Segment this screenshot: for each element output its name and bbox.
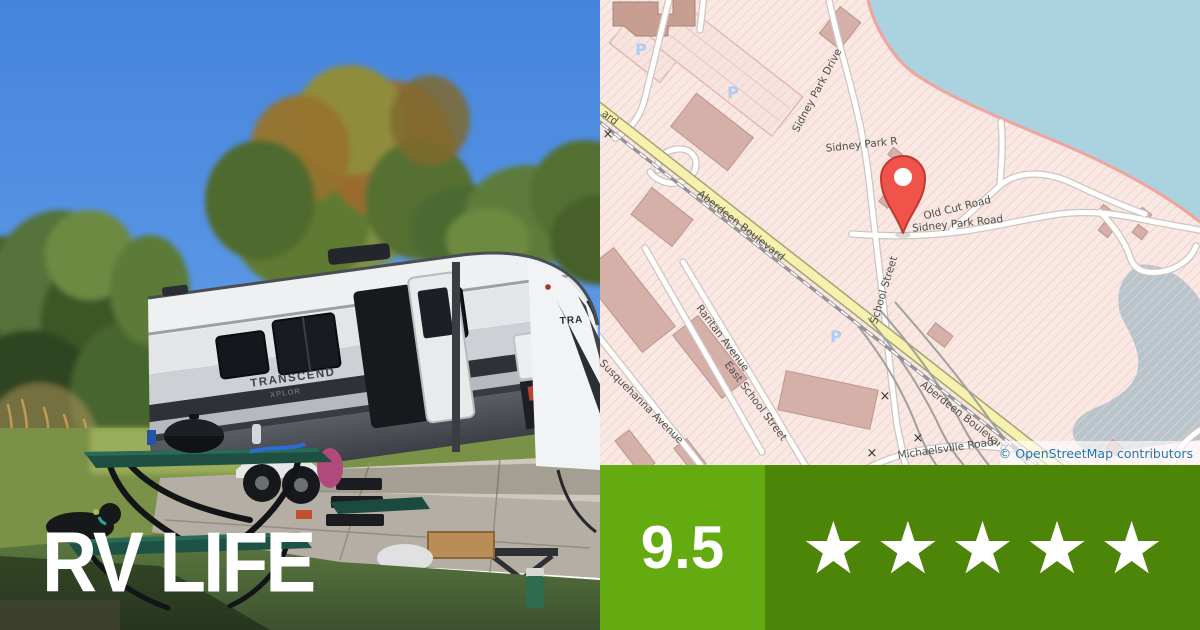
svg-text:P: P [635, 40, 647, 59]
svg-text:×: × [603, 127, 614, 142]
rating-score: 9.5 [641, 513, 724, 582]
water-bottle [252, 424, 261, 444]
attribution-link: © OpenStreetMap contributors [999, 446, 1193, 461]
rating-stars-box: ★★★★★ [765, 465, 1200, 630]
rating-bar: 9.5 ★★★★★ [600, 465, 1200, 630]
svg-text:P: P [830, 327, 842, 346]
svg-text:P: P [727, 83, 739, 102]
star-icons: ★★★★★ [791, 512, 1174, 584]
campsite-photo: TRANSCEND XPLOR [0, 0, 600, 630]
osm-map: × × × × P P P Sidney Park Drive Sidney P… [600, 0, 1200, 465]
rv-marker-light [545, 284, 551, 290]
rv-life-share-card: TRANSCEND XPLOR [0, 0, 1200, 630]
rating-score-box: 9.5 [600, 465, 765, 630]
blue-cup [147, 430, 156, 445]
rv-awning-arm [452, 262, 460, 452]
utility-pedestal [526, 568, 544, 608]
svg-text:×: × [880, 389, 891, 404]
rv-front-decal-text: TRA [559, 314, 583, 327]
svg-text:×: × [913, 431, 924, 446]
page-title: RV LIFE [42, 521, 313, 606]
location-map: × × × × P P P Sidney Park Drive Sidney P… [600, 0, 1200, 465]
svg-text:×: × [867, 446, 878, 461]
rv-window-rear [216, 331, 269, 379]
leveling-block [428, 532, 494, 558]
map-attribution[interactable]: © OpenStreetMap contributors [999, 441, 1200, 465]
